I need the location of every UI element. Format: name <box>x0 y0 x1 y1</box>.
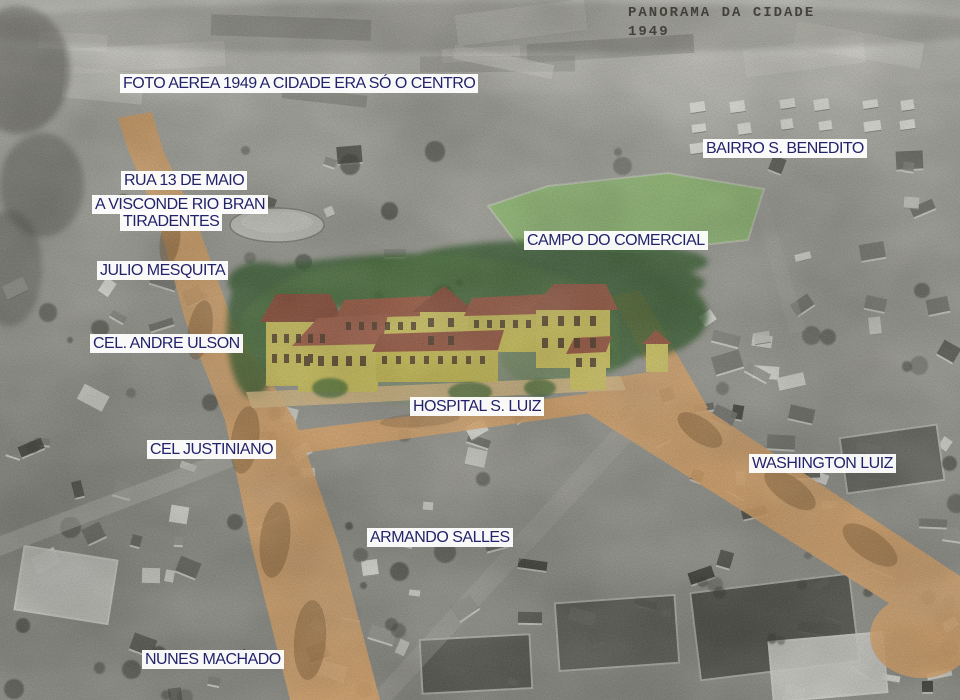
label-washington-luiz: WASHINGTON LUIZ <box>749 454 896 473</box>
panorama-stamp-line1: PANORAMA DA CIDADE <box>628 5 815 21</box>
label-hospital-s-luiz: HOSPITAL S. LUIZ <box>410 397 544 416</box>
caption-foto-aerea: FOTO AEREA 1949 A CIDADE ERA SÓ O CENTRO <box>120 74 478 93</box>
label-cel-andre-ulson: CEL. ANDRE ULSON <box>90 334 243 353</box>
label-campo-do-comercial: CAMPO DO COMERCIAL <box>524 231 708 250</box>
annotated-aerial-photo: PANORAMA DA CIDADE 1949 FOTO AEREA 1949 … <box>0 0 960 700</box>
panorama-stamp-line2: 1949 <box>628 24 670 40</box>
label-nunes-machado: NUNES MACHADO <box>142 650 284 669</box>
label-tiradentes: TIRADENTES <box>120 212 222 231</box>
label-cel-justiniano: CEL JUSTINIANO <box>147 440 276 459</box>
label-bairro-s-benedito: BAIRRO S. BENEDITO <box>703 139 867 158</box>
label-armando-salles: ARMANDO SALLES <box>367 528 513 547</box>
label-rua-13-de-maio: RUA 13 DE MAIO <box>121 171 247 190</box>
label-julio-mesquita: JULIO MESQUITA <box>97 261 228 280</box>
annotation-labels: PANORAMA DA CIDADE 1949 FOTO AEREA 1949 … <box>0 0 960 700</box>
